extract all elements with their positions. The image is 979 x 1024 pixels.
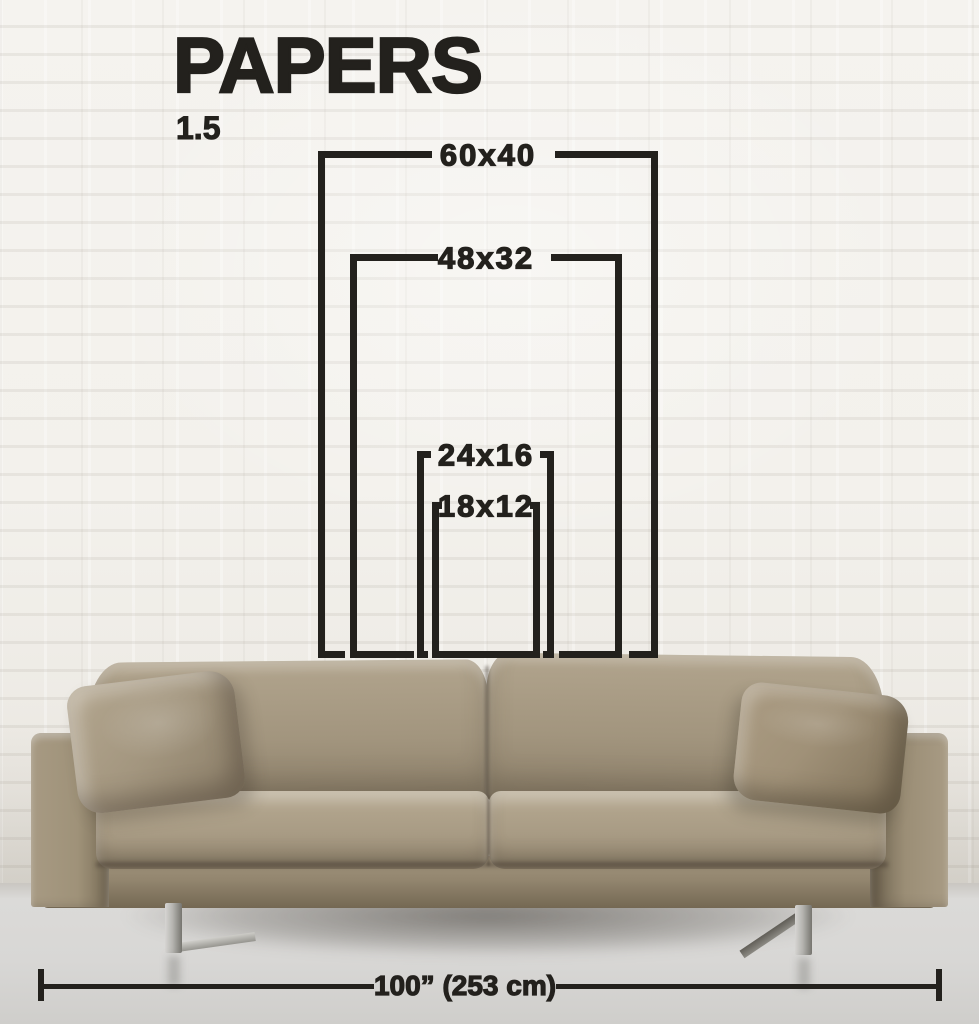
- throw-pillow-right: [731, 681, 910, 816]
- poster-size-guide: PAPERS 1.5 60x40 48x32 24x16 1: [0, 0, 979, 1024]
- size-label-48x32: 48x32: [438, 243, 534, 274]
- size-label-24x16: 24x16: [438, 440, 534, 471]
- rect-edge-left: [417, 451, 424, 658]
- sofa-leg-right: [795, 905, 812, 955]
- rect-edge-right: [547, 451, 554, 658]
- measure-cap-right: [936, 969, 942, 1001]
- throw-pillow-left: [65, 668, 247, 816]
- sofa-leg-left: [165, 903, 182, 953]
- rect-edge-left: [350, 254, 357, 658]
- sofa-seat-crease: [96, 862, 888, 867]
- aspect-ratio-label: 1.5: [176, 112, 220, 144]
- rect-edge-top-left: [350, 254, 438, 261]
- size-label-60x40: 60x40: [440, 140, 536, 171]
- rect-edge-bottom-left: [318, 651, 345, 658]
- rect-edge-right: [615, 254, 622, 658]
- rect-edge-bottom-left: [417, 651, 428, 658]
- rect-edge-right: [651, 151, 658, 658]
- rect-edge-top-left: [417, 451, 431, 458]
- rect-edge-bottom-left: [350, 651, 414, 658]
- rect-edge-bottom-right: [559, 651, 622, 658]
- sofa-back-seam: [485, 666, 489, 798]
- rect-edge-right: [533, 502, 540, 658]
- sofa-width-label: 100” (253 cm): [374, 970, 556, 1002]
- leg-reflection-left: [168, 956, 180, 986]
- rect-edge-bottom-right: [543, 651, 554, 658]
- size-label-18x12: 18x12: [438, 491, 534, 522]
- measure-line-right: [556, 984, 940, 989]
- rect-edge-top-right: [551, 254, 622, 261]
- page-title: PAPERS: [173, 26, 482, 104]
- rect-edge-left: [318, 151, 325, 658]
- measure-line-left: [40, 984, 374, 989]
- rect-edge-bottom: [432, 651, 540, 658]
- rect-edge-bottom-right: [629, 651, 658, 658]
- rect-edge-top-right: [555, 151, 658, 158]
- sofa-seat-seam: [487, 796, 490, 866]
- rect-edge-top-right: [540, 451, 554, 458]
- rect-edge-top-left: [318, 151, 432, 158]
- rect-edge-left: [432, 502, 439, 658]
